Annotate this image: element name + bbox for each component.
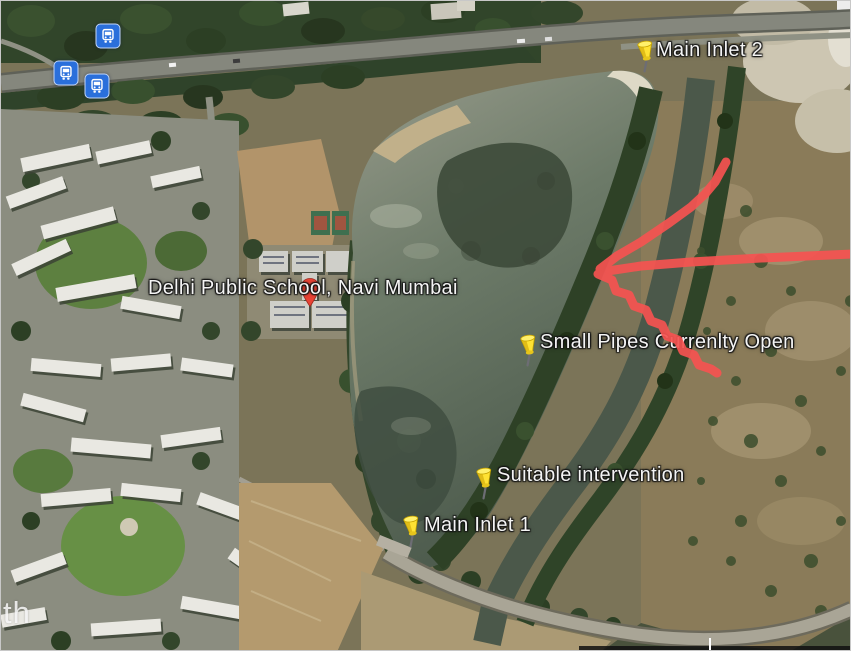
bottom-ui-bar (579, 646, 851, 651)
suitable-intervention-label: Suitable intervention (497, 462, 685, 489)
yellow-pushpin-icon (516, 333, 542, 367)
bus-glyph (89, 78, 106, 95)
delhi-public-school-label: Delhi Public School, Navi Mumbai (148, 275, 458, 302)
terrain-layer (1, 1, 851, 651)
google-earth-watermark: th (3, 595, 31, 631)
bus-stop-2-icon[interactable] (54, 61, 79, 86)
main-inlet-1-label: Main Inlet 1 (424, 512, 531, 539)
small-pipes-currently-open-label: Small Pipes Currenlty Open (540, 329, 795, 356)
yellow-pushpin-icon (399, 514, 425, 548)
residential-area (1, 109, 278, 651)
yellow-pushpin-icon (472, 466, 498, 500)
main-inlet-2-label: Main Inlet 2 (656, 37, 763, 64)
scale-bar-tick (709, 638, 711, 651)
bus-stop-1-icon[interactable] (96, 24, 121, 49)
bus-glyph (58, 65, 75, 82)
satellite-map[interactable]: th Main Inlet 2 (0, 0, 851, 651)
bus-stop-3-icon[interactable] (85, 74, 110, 99)
bus-glyph (100, 28, 117, 45)
